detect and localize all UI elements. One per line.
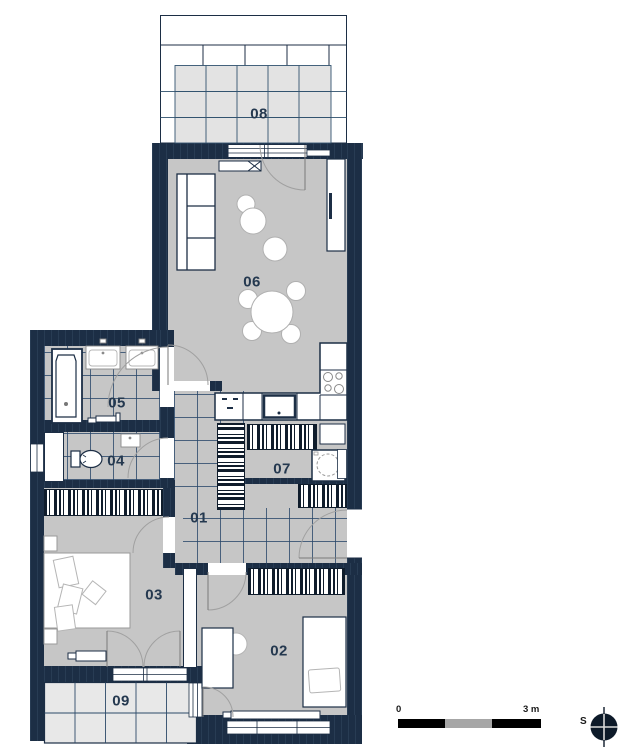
- scale-end-label: 3 m: [523, 704, 539, 715]
- window-wc-left: [31, 444, 44, 472]
- room-label-02: 02: [270, 643, 288, 660]
- bathtub: [52, 349, 82, 423]
- floor-plan: 08 06 05 04 07 01 03 02 09 0 3 m S: [0, 0, 629, 754]
- vanity-sinks: [86, 339, 158, 369]
- toilet: [71, 451, 102, 468]
- room-label-04: 04: [107, 453, 125, 470]
- towel-radiator: [88, 413, 120, 423]
- radiator-living: [219, 161, 261, 171]
- closet-cabinet: [338, 450, 347, 479]
- room-label-09: 09: [112, 693, 130, 710]
- radiator-bedroom1: [68, 651, 106, 661]
- door-balcony-bedroom2: [189, 683, 202, 717]
- window-bedroom1-balcony: [113, 668, 187, 681]
- desk: [202, 628, 233, 688]
- room-label-06: 06: [243, 274, 261, 291]
- room-label-08: 08: [250, 106, 268, 123]
- terrace-grid: [161, 16, 347, 144]
- nightstand-top: [44, 536, 57, 551]
- lounge-chairs: [237, 195, 287, 261]
- bed-double: [44, 553, 130, 631]
- radiator-bedroom2: [223, 711, 320, 719]
- scale-start-label: 0: [396, 704, 401, 715]
- north-arrow-icon: [591, 707, 618, 747]
- room-label-03: 03: [145, 587, 163, 604]
- sofa: [177, 174, 215, 270]
- compass-letter: S: [580, 716, 587, 727]
- nightstand-bottom: [44, 629, 57, 644]
- dining-set: [239, 282, 306, 344]
- bed-single: [303, 617, 346, 707]
- kitchen-tall-cabinet: [320, 424, 345, 444]
- room-label-07: 07: [273, 461, 291, 478]
- scale-bar: [398, 719, 541, 728]
- entrance-opening: [347, 509, 362, 558]
- plan-linework: [0, 0, 629, 754]
- tv-cabinet: [327, 159, 345, 251]
- oven: [264, 396, 295, 418]
- room-label-01: 01: [190, 510, 208, 527]
- room-label-05: 05: [108, 395, 126, 412]
- wc-sink: [121, 434, 140, 447]
- window-living-balcony: [228, 145, 330, 158]
- window-bedroom2-bottom: [227, 721, 330, 734]
